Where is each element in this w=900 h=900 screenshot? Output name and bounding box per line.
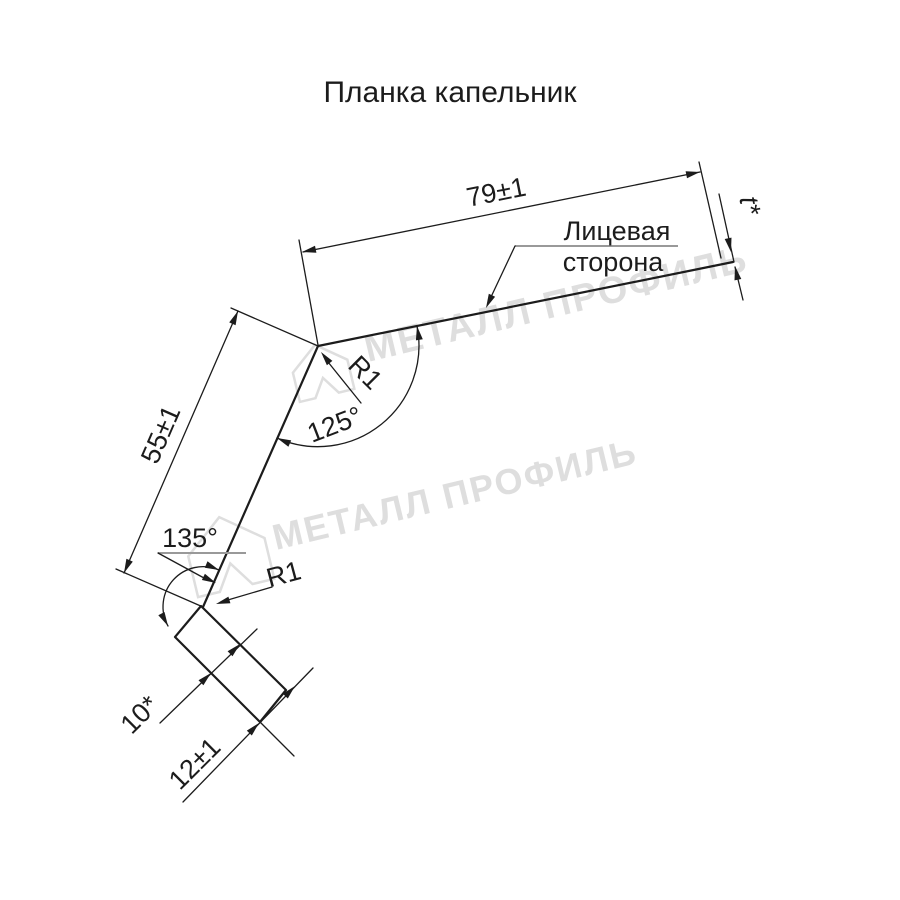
arrowhead-icon (202, 574, 216, 583)
extension-line (299, 240, 318, 345)
face-side-label-line2: сторона (563, 247, 665, 277)
profile-hem-fold (175, 606, 286, 722)
arrowhead-icon (229, 311, 238, 325)
extension-line (260, 722, 294, 756)
arrowhead-icon (205, 561, 219, 570)
arrowhead-icon (216, 597, 230, 604)
angle-label-top: 125° (303, 401, 366, 449)
drawing-canvas: МЕТАЛЛ ПРОФИЛЬ МЕТАЛЛ ПРОФИЛЬ Планка кап… (0, 0, 900, 900)
arrowhead-icon (124, 559, 133, 573)
watermark-text: МЕТАЛЛ ПРОФИЛЬ (268, 431, 641, 558)
dimension-label-top-width: 79±1 (464, 172, 529, 213)
arrowhead-icon (321, 352, 332, 365)
extension-line (116, 569, 203, 607)
dimension-hem-depth: 10* (115, 629, 257, 740)
dimension-label-leg-height: 55±1 (135, 401, 186, 468)
extension-line (231, 308, 318, 346)
technical-drawing-page: МЕТАЛЛ ПРОФИЛЬ МЕТАЛЛ ПРОФИЛЬ Планка кап… (0, 0, 900, 900)
leader-line (491, 246, 515, 297)
face-side-label-line1: Лицевая (564, 216, 671, 246)
dimension-label-thickness: t* (734, 194, 767, 218)
dimension-label-hem-depth: 10* (115, 689, 165, 739)
arrowhead-icon (158, 612, 168, 626)
arrowhead-icon (228, 644, 240, 656)
arrowhead-icon (686, 171, 700, 178)
dimension-hem-overall: 12±1 (163, 668, 313, 802)
arrowhead-icon (277, 438, 291, 447)
drawing-title: Планка капельник (323, 76, 577, 109)
dimension-label-hem-overall: 12±1 (163, 732, 227, 796)
watermark-group: МЕТАЛЛ ПРОФИЛЬ МЕТАЛЛ ПРОФИЛЬ (181, 238, 752, 597)
angle-label-bottom: 135° (162, 523, 218, 553)
arrowhead-icon (302, 246, 316, 253)
leader-line (158, 553, 204, 578)
extension-line (699, 162, 721, 258)
